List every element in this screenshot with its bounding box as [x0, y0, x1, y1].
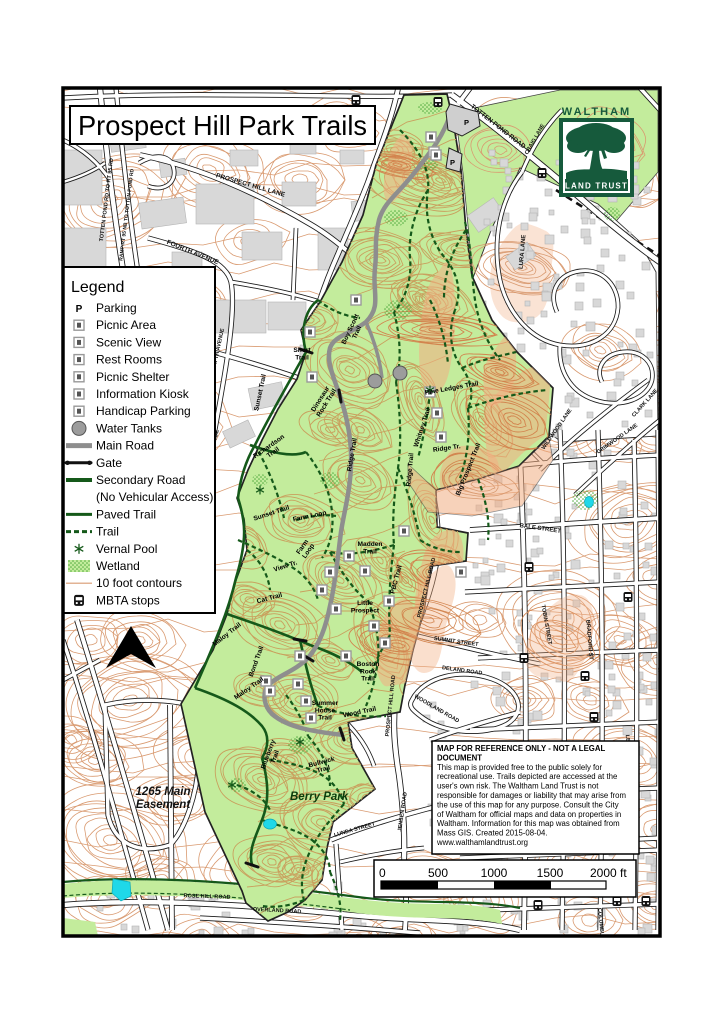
svg-text:Water Tanks: Water Tanks [96, 421, 162, 435]
svg-text:Boston: Boston [357, 661, 380, 668]
svg-text:responsible for damages or lia: responsible for damages or liability tha… [437, 791, 626, 800]
svg-text:WALTHAM: WALTHAM [562, 106, 631, 118]
svg-text:Wetland: Wetland [96, 559, 140, 573]
svg-text:Gate: Gate [96, 456, 122, 470]
svg-text:LAND TRUST: LAND TRUST [565, 182, 628, 191]
svg-text:Trail: Trail [361, 676, 375, 683]
svg-text:P: P [76, 304, 83, 315]
svg-text:Handicap Parking: Handicap Parking [96, 404, 191, 418]
svg-text:Secondary Road: Secondary Road [96, 473, 185, 487]
svg-text:www.walthamlandtrust.org: www.walthamlandtrust.org [436, 838, 528, 847]
svg-text:Easement: Easement [136, 799, 192, 811]
svg-text:of Waltham for official maps a: of Waltham for official maps and data on… [437, 810, 621, 819]
svg-text:Madden: Madden [358, 541, 383, 548]
svg-text:Berry Park: Berry Park [290, 791, 349, 803]
svg-text:Vernal Pool: Vernal Pool [96, 542, 157, 556]
svg-text:Trail: Trail [96, 525, 119, 539]
svg-text:Waltham. Information for this: Waltham. Information for this map was ob… [437, 819, 620, 828]
svg-text:500: 500 [428, 866, 448, 880]
svg-text:Rest Rooms: Rest Rooms [96, 353, 162, 367]
svg-text:Scenic View: Scenic View [96, 335, 161, 349]
svg-text:2000 ft: 2000 ft [590, 866, 627, 880]
svg-text:1265 Main: 1265 Main [136, 786, 191, 798]
svg-text:Prospect: Prospect [351, 607, 380, 614]
svg-text:Legend: Legend [71, 279, 124, 296]
svg-text:10 foot contours: 10 foot contours [96, 576, 182, 590]
svg-text:user's own risk. The Waltham L: user's own risk. The Waltham Land Trust … [437, 782, 599, 791]
svg-text:P: P [464, 118, 469, 127]
svg-text:1000: 1000 [481, 866, 508, 880]
svg-text:0: 0 [379, 866, 386, 880]
svg-text:1500: 1500 [537, 866, 564, 880]
svg-text:MBTA stops: MBTA stops [96, 593, 160, 607]
svg-text:Trail: Trail [318, 715, 332, 722]
svg-text:Rock: Rock [360, 668, 376, 675]
svg-text:Information Kiosk: Information Kiosk [96, 387, 190, 401]
svg-text:(No Vehicular Access): (No Vehicular Access) [96, 490, 213, 504]
svg-text:House: House [315, 707, 335, 714]
svg-text:Prospect Hill Park Trails: Prospect Hill Park Trails [78, 110, 367, 141]
svg-text:Main Road: Main Road [96, 439, 154, 453]
svg-text:Picnic Area: Picnic Area [96, 318, 156, 332]
svg-text:Trail: Trail [295, 354, 309, 361]
svg-text:MAP FOR REFERENCE ONLY - NOT A: MAP FOR REFERENCE ONLY - NOT A LEGAL [437, 744, 605, 753]
svg-text:Paved Trail: Paved Trail [96, 507, 156, 521]
svg-text:recreational use. Trails depic: recreational use. Trails depicted are ac… [437, 772, 617, 781]
svg-text:This map is provided free to t: This map is provided free to the public … [437, 763, 603, 772]
svg-text:DOCUMENT: DOCUMENT [437, 753, 482, 762]
svg-text:Summer: Summer [312, 700, 339, 707]
svg-text:P: P [450, 158, 455, 167]
svg-text:Parking: Parking [96, 301, 137, 315]
svg-text:Trail: Trail [363, 548, 377, 555]
svg-text:Little: Little [357, 600, 373, 607]
svg-text:the use of this map for any pu: the use of this map for any purpose. Con… [437, 800, 619, 809]
svg-text:Picnic Shelter: Picnic Shelter [96, 370, 169, 384]
svg-text:Mass GIS. Created 2015-08-04.: Mass GIS. Created 2015-08-04. [437, 829, 548, 838]
svg-text:Short: Short [293, 347, 311, 354]
